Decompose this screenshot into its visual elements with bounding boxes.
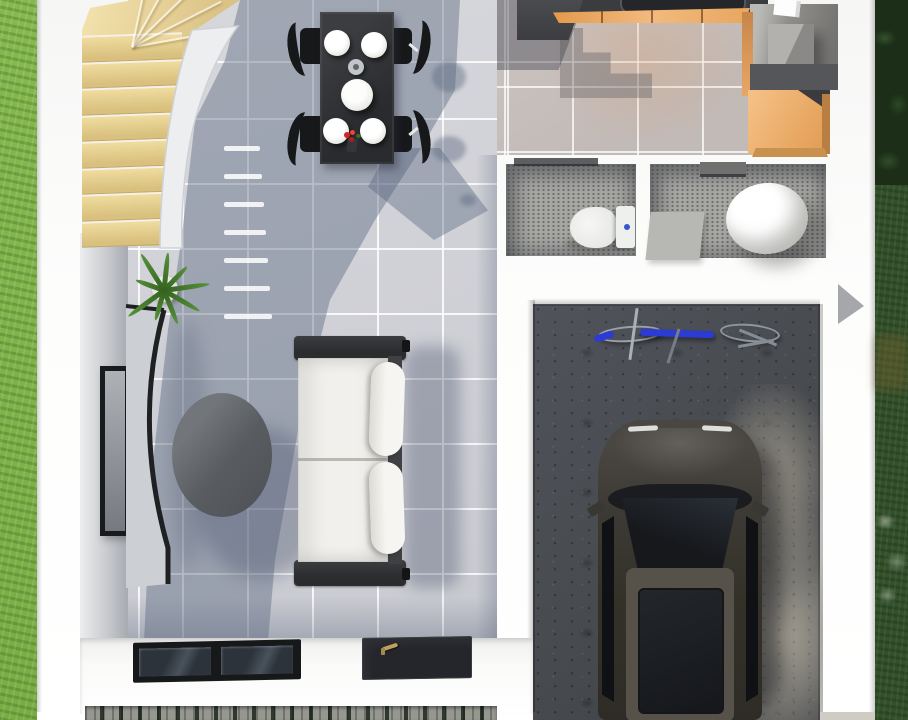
small-shadow	[460, 194, 476, 206]
sofa-shadow	[404, 346, 460, 588]
sofa-back-cushion	[368, 461, 405, 554]
toilet-flush-button	[624, 224, 630, 230]
lawn-brown-patch	[875, 335, 908, 390]
driveway-edge	[820, 712, 875, 720]
flower-petal	[349, 137, 354, 142]
countertop-appliance	[768, 24, 814, 64]
potted-plant	[122, 248, 206, 332]
car-windshield	[614, 498, 746, 570]
wall-edge-shadow-right	[869, 0, 875, 712]
bush-right	[872, 488, 908, 622]
paving-stones	[85, 706, 497, 720]
trees-top-right	[875, 0, 908, 190]
small-bowl-center	[353, 64, 359, 70]
bottom-wall-shadow	[128, 596, 497, 642]
console-top-surface	[126, 306, 168, 588]
sofa-foot	[402, 340, 410, 352]
flower-petal	[350, 130, 355, 135]
plate	[360, 118, 386, 144]
plate	[323, 118, 349, 144]
car-side-windows	[746, 516, 758, 702]
garage-wall-shadow-right	[818, 304, 823, 720]
counter-right-shade	[750, 64, 838, 90]
chair-shadow	[432, 62, 466, 92]
double-window	[133, 639, 301, 683]
bath-mat	[645, 212, 704, 260]
car	[596, 418, 766, 720]
tread-reflection-dash	[224, 314, 272, 319]
sofa-back-cushion	[368, 361, 405, 456]
car-side-windows	[602, 516, 614, 702]
curved-stair-wall	[80, 0, 255, 250]
front-door	[362, 636, 472, 680]
coffee-table	[172, 393, 272, 517]
island-bottom-face	[752, 148, 828, 157]
curved-wall-shape	[160, 26, 238, 248]
window-pane	[221, 645, 293, 675]
toilet-bowl	[570, 207, 617, 248]
corridor-shadow	[476, 155, 497, 638]
window-pane	[139, 647, 211, 677]
lawn-left	[0, 0, 37, 720]
sofa	[294, 334, 412, 586]
plate	[361, 32, 387, 58]
serving-bowl	[341, 79, 373, 111]
white-appliance-panel	[773, 0, 801, 17]
car-sunroof	[638, 588, 724, 714]
tread-reflection-dash	[224, 258, 268, 263]
sofa-cushion-divider	[298, 458, 388, 461]
bicycle	[588, 300, 788, 375]
floorplan-render	[0, 0, 908, 720]
car-body	[598, 420, 762, 720]
wall-edge-shadow-left	[37, 0, 42, 712]
chair-shadow	[432, 136, 466, 162]
bathroom-left-door-lintel	[514, 158, 598, 166]
flower-leaf	[356, 134, 361, 138]
sofa-foot	[402, 568, 410, 580]
bathroom-right-door-lintel	[700, 162, 746, 177]
car-hood-highlight	[612, 428, 748, 480]
island-side-face	[822, 94, 830, 154]
plate	[324, 30, 350, 56]
staircase	[80, 0, 255, 250]
door-handle-knob	[381, 648, 385, 655]
tread-reflection-dash	[224, 286, 270, 291]
lawn-right	[875, 185, 908, 720]
